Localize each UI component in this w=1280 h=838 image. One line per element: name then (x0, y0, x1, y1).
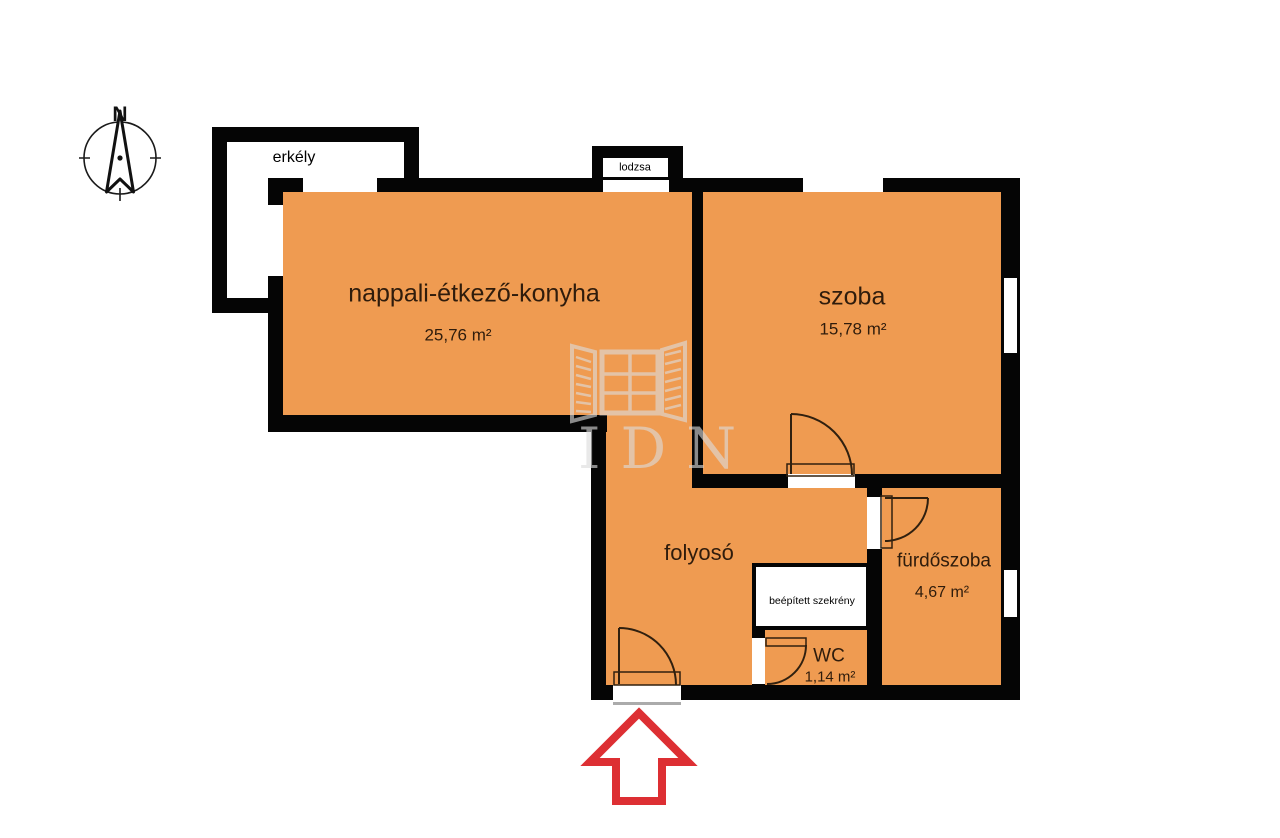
living-room-label: nappali-étkező-konyha (348, 282, 600, 307)
door-opening-entrance (613, 685, 681, 705)
wc-area: 1,14 m² (805, 670, 856, 685)
window-bedroom-right (1004, 278, 1017, 353)
bedroom-label: szoba (819, 285, 886, 310)
compass: N (79, 103, 161, 201)
living-room-area: 25,76 m² (424, 327, 491, 344)
compass-circle (84, 122, 156, 194)
window-bedroom-top (803, 178, 883, 192)
bedroom-area: 15,78 m² (819, 321, 886, 338)
wc-label: WC (813, 647, 845, 666)
floorplan-canvas: N (0, 0, 1280, 838)
compass-ticks (79, 158, 161, 201)
door-opening-bedroom (788, 474, 855, 488)
compass-needle (107, 111, 134, 192)
wall-hallway-left (591, 415, 606, 700)
closet-label: beépített szekrény (769, 596, 855, 607)
compass-center-dot (117, 155, 122, 160)
window-bathroom-right (1004, 570, 1017, 617)
compass-north-label: N (112, 103, 127, 126)
window-balcony-side (268, 205, 283, 276)
door-opening-wc (752, 638, 765, 684)
bathroom-area: 4,67 m² (915, 585, 969, 601)
bathroom-label: fürdőszoba (897, 552, 991, 571)
wall-right (1001, 178, 1020, 700)
entrance-arrow (590, 713, 688, 801)
wall-living-bottom (268, 415, 607, 432)
loggia-label: lodzsa (619, 163, 651, 174)
window-balcony-top (303, 178, 377, 192)
loggia-window-opening (603, 180, 669, 192)
wall-living-bedroom (692, 192, 703, 488)
door-opening-bathroom (867, 497, 882, 549)
wall-bedroom-bottom (692, 474, 1020, 488)
balcony-label: erkély (273, 150, 316, 166)
hallway-label: folyosó (664, 542, 734, 564)
